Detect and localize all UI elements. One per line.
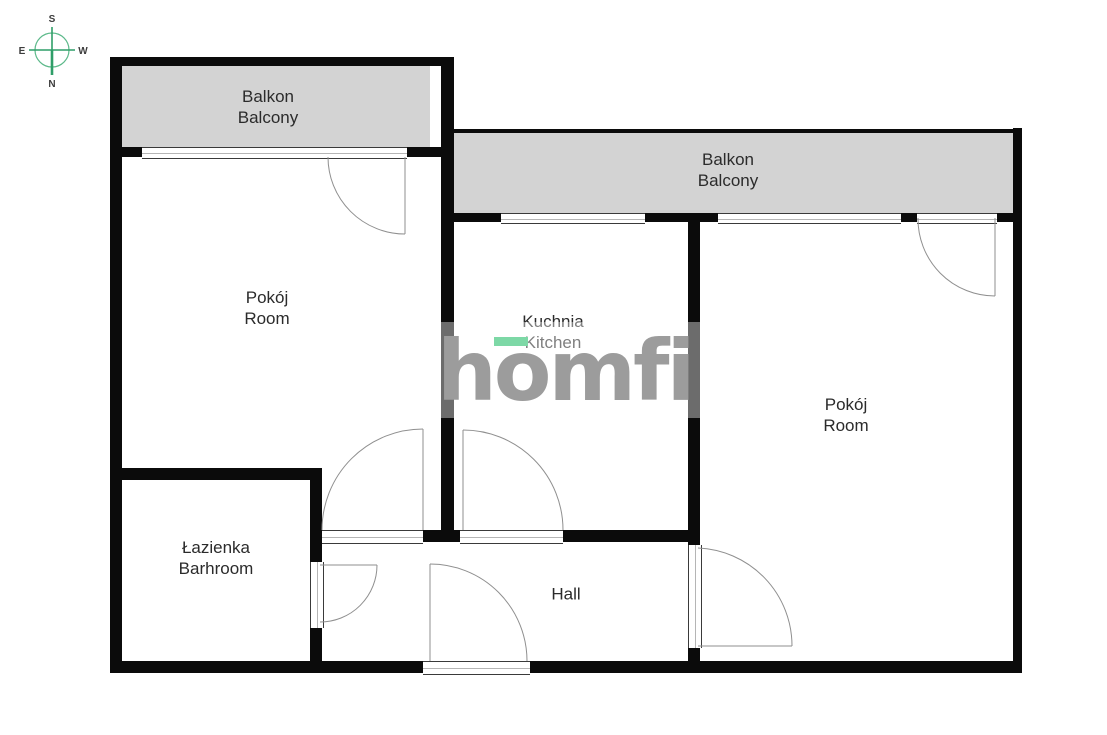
threshold-balcony-door [917, 213, 997, 224]
compass-label-e: E [19, 46, 26, 57]
outer-left [110, 57, 122, 673]
bathroom-right-up [310, 468, 322, 562]
compass-label-w: W [78, 46, 88, 57]
threshold-bathroom [310, 562, 324, 628]
room-right-top-a [901, 213, 917, 222]
logo-accent-bar [494, 337, 528, 346]
door-entrance-arc [430, 564, 527, 661]
hall-top-mid [423, 530, 460, 542]
threshold-kitchen [460, 530, 563, 544]
floor-plan-canvas: BalkonBalconyBalkonBalconyPokójRoomKuchn… [0, 0, 1107, 735]
label-hall-pl: Hall [551, 584, 580, 605]
kitchen-room-vert-low [688, 648, 700, 673]
label-balcony-right-pl: Balkon [698, 149, 758, 170]
label-bathroom-pl: Łazienka [179, 537, 254, 558]
label-balcony-left: BalkonBalcony [238, 86, 298, 128]
threshold-room-left [322, 530, 423, 544]
label-room-right: PokójRoom [823, 394, 868, 436]
window-kitchen [501, 213, 645, 224]
threshold-room-right [688, 545, 702, 648]
compass-label-s: S [49, 14, 56, 25]
compass-label-n: N [48, 79, 55, 90]
window-room-right [718, 213, 901, 224]
balcony-right-top [450, 129, 1013, 133]
door-balcony-room-right-arc [918, 218, 995, 296]
window-room-left [142, 147, 407, 159]
label-room-left-en: Room [244, 308, 289, 329]
label-balcony-left-pl: Balkon [238, 86, 298, 107]
outer-bottom-left [110, 661, 423, 673]
label-bathroom-en: Barhroom [179, 558, 254, 579]
hall-top-right [563, 530, 688, 542]
left-window-notch-l [122, 147, 142, 157]
outer-right [1013, 128, 1022, 673]
kitchen-top-b [645, 213, 718, 222]
door-hall-kitchen-arc [463, 430, 563, 530]
homfi-watermark: homfi [437, 323, 717, 423]
label-room-left-pl: Pokój [244, 287, 289, 308]
label-balcony-right-en: Balcony [698, 170, 758, 191]
bathroom-top [110, 468, 322, 480]
label-room-right-en: Room [823, 415, 868, 436]
label-balcony-right: BalkonBalcony [698, 149, 758, 191]
door-hall-bathroom-arc [320, 565, 377, 622]
room-right-top-b [997, 213, 1013, 222]
logo-text: homfi [437, 322, 692, 420]
compass-rose: S N E W [14, 6, 92, 94]
door-hall-room-left-arc [322, 429, 423, 530]
door-hall-room-right-arc [698, 548, 792, 646]
label-room-left: PokójRoom [244, 287, 289, 329]
outer-bottom-right [530, 661, 1022, 673]
balcony-left-top [110, 57, 443, 66]
label-hall: Hall [551, 584, 580, 605]
label-bathroom: ŁazienkaBarhroom [179, 537, 254, 579]
label-room-right-pl: Pokój [823, 394, 868, 415]
left-window-notch-r [407, 147, 441, 157]
label-balcony-left-en: Balcony [238, 107, 298, 128]
bathroom-right-low [310, 628, 322, 673]
threshold-entrance [423, 661, 530, 675]
door-balcony-room-left-arc [328, 157, 405, 234]
kitchen-top-a [441, 213, 501, 222]
